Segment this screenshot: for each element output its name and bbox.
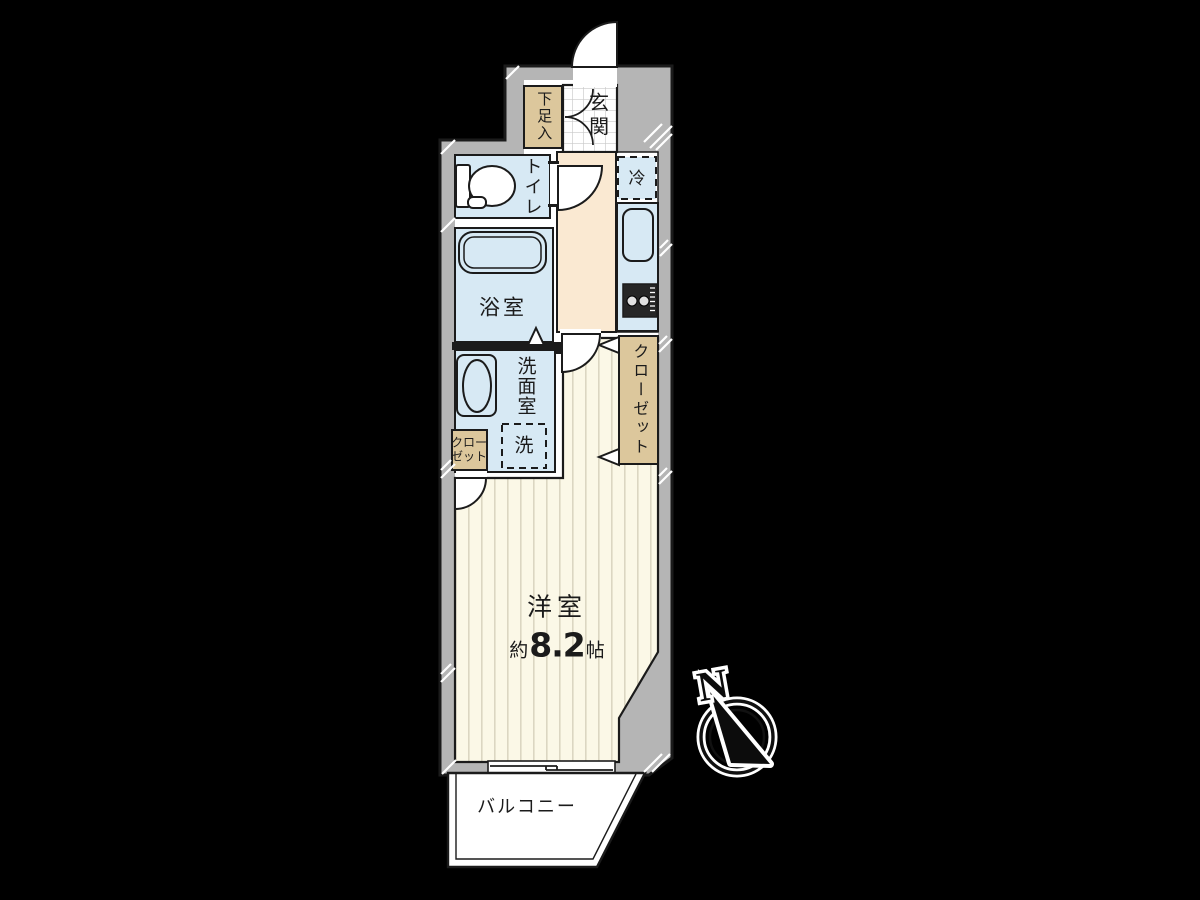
closet-main-label: クローゼット xyxy=(630,343,647,457)
vanity-basin xyxy=(463,360,491,412)
kitchen-sink xyxy=(623,209,653,261)
refrigerator-label: 冷 xyxy=(629,170,646,188)
toilet-base xyxy=(468,197,486,208)
toilet-label: トイレ xyxy=(522,157,541,217)
balcony-floor xyxy=(448,773,645,867)
genkan-label: 玄関 xyxy=(585,92,607,140)
washroom-label: 洗面室 xyxy=(514,356,535,416)
western-room-size: 約 8.2 帖 xyxy=(509,626,605,665)
bathtub xyxy=(459,232,546,273)
western-room-name: 洋室 xyxy=(509,588,605,624)
laundry-label: 洗 xyxy=(514,437,533,458)
balcony-label: バルコニー xyxy=(477,797,577,816)
floor-plan-canvas: N 玄関 下足入 トイレ 冷 浴室 洗面室 洗 クローゼット クローゼット 洋室… xyxy=(0,0,1200,900)
shoe-box-label: 下足入 xyxy=(535,91,551,142)
stove-burner xyxy=(627,296,637,306)
door-jamb xyxy=(548,161,559,164)
compass-north-icon: N xyxy=(694,661,773,773)
closet-small-label: クローゼット xyxy=(447,436,491,465)
compass-north-label: N xyxy=(694,661,732,712)
stove-burner xyxy=(639,296,649,306)
entry-door-swing xyxy=(572,22,617,67)
bathroom-label: 浴室 xyxy=(479,298,527,321)
western-room-label: 洋室 約 8.2 帖 xyxy=(509,588,605,665)
